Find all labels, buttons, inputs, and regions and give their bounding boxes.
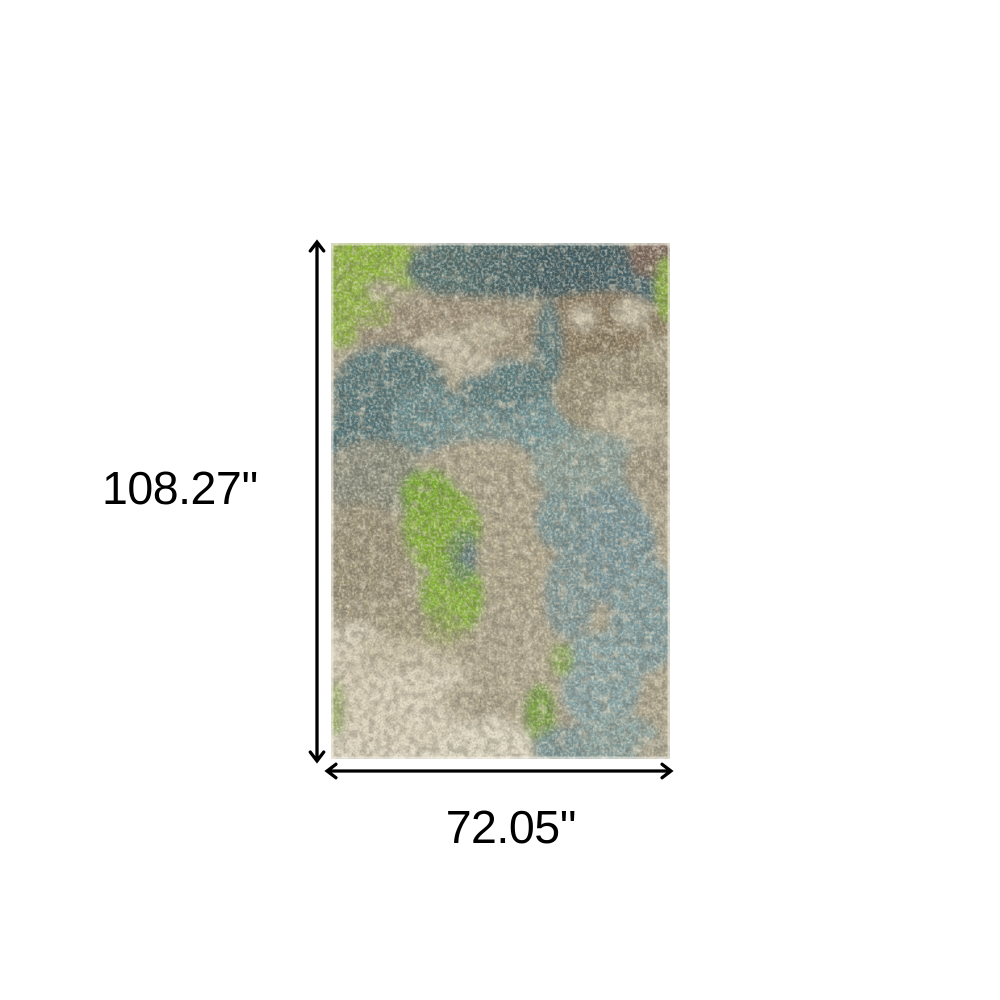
svg-text:72.05'': 72.05'' [446, 801, 577, 853]
svg-text:108.27'': 108.27'' [102, 462, 258, 514]
